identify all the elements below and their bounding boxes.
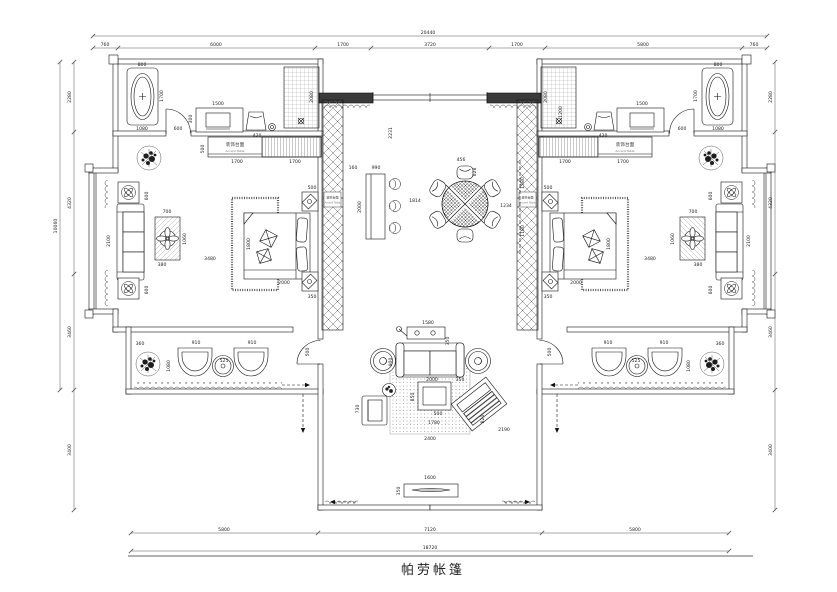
column-marker bbox=[109, 55, 118, 64]
exit-arrow bbox=[282, 383, 310, 387]
dim-label-rb_tub_w: 800 bbox=[714, 62, 723, 68]
dim-label-c_628: 628 bbox=[472, 168, 478, 177]
dim-label-c_1180: 1180 bbox=[520, 225, 526, 237]
right-wing bbox=[430, 55, 775, 510]
dim-label-c_160: 160 bbox=[349, 165, 358, 171]
accent-table-sublabel: Accent Table bbox=[616, 149, 635, 153]
column-marker bbox=[85, 164, 93, 172]
tub-chair bbox=[178, 348, 212, 376]
exit-arrow bbox=[301, 394, 305, 433]
center-hall bbox=[362, 92, 520, 497]
accent-table-label: 装饰台面 bbox=[226, 141, 245, 148]
dim-label-c_1814: 1814 bbox=[409, 198, 421, 204]
dim-label-lv_350b: 350 bbox=[456, 377, 465, 383]
left-wing bbox=[85, 55, 430, 510]
accent-table-label: 装饰台面 bbox=[616, 141, 635, 148]
dim-label-l1: 2280 bbox=[67, 91, 73, 103]
dim-label-ll_plant: 360 bbox=[136, 341, 145, 347]
plant-side-table bbox=[383, 384, 396, 397]
dim-label-c_456: 456 bbox=[457, 157, 466, 163]
dim-label-lv_2400: 2400 bbox=[424, 436, 436, 442]
coffee-table bbox=[418, 382, 451, 410]
column-marker bbox=[85, 310, 93, 318]
dim-label-l2: 4320 bbox=[67, 197, 73, 209]
coffee-table bbox=[155, 217, 180, 260]
dim-label-lb_gap: 600 bbox=[174, 126, 183, 132]
vanity-dresser bbox=[196, 108, 243, 132]
dim-label-rr_gap: 3480 bbox=[644, 256, 656, 262]
curtain bbox=[104, 180, 110, 208]
dim-label-b2: 7120 bbox=[424, 527, 436, 533]
dim-label-rr_tbl_w: 700 bbox=[689, 209, 698, 215]
dim-label-lv_820: 820 bbox=[480, 415, 486, 424]
dim-label-l4: 3400 bbox=[67, 444, 73, 456]
dim-label-rb_gap: 600 bbox=[678, 126, 687, 132]
drawing-title: 帕劳帐篷 bbox=[401, 562, 465, 578]
floor-drain bbox=[269, 124, 276, 131]
bar-counter bbox=[366, 174, 385, 239]
dim-label-lb_cab_d: 500 bbox=[200, 145, 206, 154]
dim-label-lr_tbl_h: 1060 bbox=[182, 233, 188, 245]
dining-table bbox=[442, 181, 488, 227]
dim-label-t7: 760 bbox=[750, 42, 759, 48]
dim-label-r1: 2280 bbox=[768, 91, 774, 103]
dim-label-lv_500: 500 bbox=[434, 411, 443, 417]
dim-label-lv_730: 730 bbox=[355, 405, 361, 414]
dim-label-rl_plant: 360 bbox=[716, 341, 725, 347]
dim-label-rl_tbl: 525 bbox=[632, 358, 641, 364]
dim-label-rl_c2: 910 bbox=[660, 340, 669, 346]
dim-label-lb_van_d: 300 bbox=[188, 115, 194, 124]
curtain bbox=[104, 270, 110, 306]
dim-label-rb_stool: 420 bbox=[599, 133, 608, 139]
dim-label-rb_van_w: 1500 bbox=[636, 101, 648, 107]
lattice-screen-label: 装饰台面 bbox=[326, 195, 338, 200]
dim-label-lr_bed_w: 1800 bbox=[246, 238, 252, 250]
dim-label-rb_shower: 2080 bbox=[543, 91, 549, 103]
dim-label-lr_gap: 3480 bbox=[204, 256, 216, 262]
curtain bbox=[325, 498, 358, 504]
lattice-screen-sublabel: Accent Table bbox=[325, 201, 341, 205]
swivel-chair bbox=[466, 349, 491, 374]
dim-label-rr_bed_l: 2000 bbox=[570, 280, 582, 286]
dim-label-lw_t2: 600 bbox=[144, 286, 150, 295]
pillow bbox=[296, 218, 308, 243]
dim-label-lv_2000: 2000 bbox=[426, 377, 438, 383]
dim-label-t_total: 20440 bbox=[421, 30, 436, 36]
sofa bbox=[396, 343, 464, 377]
accent-table-sublabel: Accent Table bbox=[226, 149, 245, 153]
dim-label-lb_shower: 2080 bbox=[309, 91, 315, 103]
dim-label-l_total: 10060 bbox=[53, 219, 59, 234]
dim-label-ll_c2: 910 bbox=[248, 340, 257, 346]
curtain bbox=[134, 382, 282, 389]
dim-label-rb_tub_b: 1080 bbox=[712, 126, 724, 132]
dim-label-lb_van_w: 1500 bbox=[212, 101, 224, 107]
dim-label-lv_cons2: 1600 bbox=[424, 475, 436, 481]
dim-label-rb_plant: 1200 bbox=[558, 106, 564, 118]
nightstand bbox=[302, 272, 318, 291]
vanity-stool bbox=[246, 112, 266, 130]
dim-label-l3: 3460 bbox=[67, 326, 73, 338]
dim-label-rb_cab2: 1700 bbox=[559, 159, 571, 165]
dim-label-rr_ns2: 350 bbox=[544, 294, 553, 300]
dim-label-rl_door: 500 bbox=[547, 348, 553, 357]
dim-label-rw_t2: 600 bbox=[708, 286, 714, 295]
lattice-screen-label: 装饰台面 bbox=[521, 195, 533, 200]
dim-label-t6: 5800 bbox=[637, 42, 649, 48]
dim-label-r3: 3460 bbox=[768, 326, 774, 338]
dim-label-rr_bed_w: 1800 bbox=[606, 238, 612, 250]
dim-label-rr_tbl_b: 380 bbox=[694, 262, 703, 268]
dim-label-rb_tub_h: 1700 bbox=[693, 90, 699, 102]
bed bbox=[232, 198, 310, 290]
dim-label-rr_tbl_h: 1060 bbox=[670, 233, 676, 245]
console-table bbox=[397, 327, 446, 340]
dimension-labels: 2044076060001700372017005800760580071205… bbox=[53, 30, 774, 551]
dim-label-t5: 1700 bbox=[511, 42, 523, 48]
dim-label-t2: 6000 bbox=[210, 42, 222, 48]
dim-label-ll_tbl: 525 bbox=[220, 358, 229, 364]
dim-label-t3: 1700 bbox=[337, 42, 349, 48]
dim-label-rr_ns1: 500 bbox=[544, 185, 553, 191]
floor-plan-sheet: 2044076060001700372017005800760580071205… bbox=[0, 0, 837, 592]
dim-label-lr_bed_l: 2000 bbox=[278, 280, 290, 286]
dim-label-ll_ch: 1080 bbox=[166, 360, 172, 372]
dim-label-lv_2190: 2190 bbox=[498, 427, 510, 433]
dim-label-lb_cab1: 1700 bbox=[231, 159, 243, 165]
dim-label-rl_ch: 1080 bbox=[686, 360, 692, 372]
dim-label-lw_t1: 600 bbox=[144, 192, 150, 201]
dim-label-rb_cab1: 1700 bbox=[617, 159, 629, 165]
dim-label-lb_stool: 420 bbox=[253, 133, 262, 139]
dim-label-b1: 5800 bbox=[218, 527, 230, 533]
dim-label-c_bar_l: 2000 bbox=[357, 201, 363, 213]
dim-label-c_1580: 1580 bbox=[520, 177, 526, 189]
dim-label-lb_tub_b: 1080 bbox=[136, 126, 148, 132]
curtain bbox=[324, 104, 370, 110]
tv-console bbox=[404, 484, 458, 497]
dim-label-lv_350a: 350 bbox=[445, 337, 451, 346]
armchair bbox=[362, 396, 387, 425]
dim-label-lb_tub_w: 800 bbox=[138, 62, 147, 68]
dim-label-b3: 5800 bbox=[629, 527, 641, 533]
bay-sofa bbox=[117, 204, 144, 280]
floor-plan-canvas: 2044076060001700372017005800760580071205… bbox=[0, 0, 837, 592]
dim-label-t1: 760 bbox=[101, 42, 110, 48]
dim-label-lb_tub_h: 1700 bbox=[159, 90, 165, 102]
nightstand bbox=[302, 192, 318, 211]
dim-label-t4: 3720 bbox=[424, 42, 436, 48]
pillow bbox=[296, 247, 308, 272]
dim-label-r4: 3400 bbox=[768, 444, 774, 456]
lattice-screen bbox=[322, 100, 343, 330]
lattice-screen-sublabel: Accent Table bbox=[520, 201, 536, 205]
dim-label-lv_1780: 1780 bbox=[428, 420, 440, 426]
dim-label-lr_ns1: 500 bbox=[308, 185, 317, 191]
dim-label-lv_console: 1580 bbox=[422, 320, 434, 326]
dim-label-rl_c1: 910 bbox=[604, 340, 613, 346]
dim-label-c_1234: 1234 bbox=[500, 203, 512, 209]
dim-label-b_total: 18720 bbox=[423, 545, 438, 551]
tub-chair bbox=[234, 348, 268, 376]
dim-label-lv_depth: 900 bbox=[388, 358, 394, 367]
dim-label-ll_c1: 910 bbox=[192, 340, 201, 346]
dim-label-rw_t1: 600 bbox=[708, 192, 714, 201]
dim-label-rw_sofa: 2100 bbox=[746, 235, 752, 247]
dim-label-r2: 4320 bbox=[768, 197, 774, 209]
bathtub bbox=[127, 68, 158, 125]
dim-label-lw_sofa: 2100 bbox=[106, 235, 112, 247]
dim-label-lr_tbl_b: 380 bbox=[158, 262, 167, 268]
dim-label-c_v: 2231 bbox=[388, 127, 394, 139]
dim-label-c_bar: 990 bbox=[372, 165, 381, 171]
dim-label-ll_door: 500 bbox=[305, 348, 311, 357]
dim-label-lv_850: 850 bbox=[410, 393, 416, 402]
dim-label-lv_cons_d: 350 bbox=[396, 487, 402, 496]
dim-label-lb_cab2: 1700 bbox=[289, 159, 301, 165]
dim-label-lr_ns2: 350 bbox=[308, 294, 317, 300]
dim-label-lr_tbl_w: 700 bbox=[163, 209, 172, 215]
